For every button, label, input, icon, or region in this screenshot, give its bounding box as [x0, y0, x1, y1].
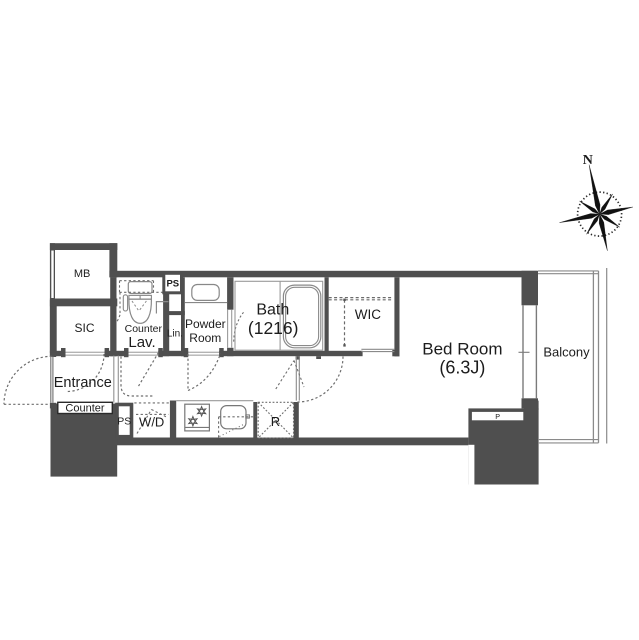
svg-text:Bath: Bath — [256, 302, 289, 319]
svg-text:Bed Room: Bed Room — [422, 340, 502, 359]
svg-text:N: N — [583, 153, 593, 168]
svg-text:Balcony: Balcony — [543, 344, 590, 359]
svg-text:PS: PS — [166, 279, 179, 290]
svg-text:Lav.: Lav. — [128, 334, 155, 351]
svg-text:Lin.: Lin. — [167, 329, 183, 340]
svg-text:WIC: WIC — [355, 307, 381, 322]
svg-text:R: R — [271, 414, 280, 429]
svg-text:Room: Room — [189, 331, 221, 345]
svg-text:P: P — [495, 412, 500, 421]
svg-text:SIC: SIC — [74, 321, 94, 335]
svg-text:Powder: Powder — [185, 317, 226, 331]
svg-text:(6.3J): (6.3J) — [439, 358, 485, 378]
svg-text:PS: PS — [117, 416, 131, 428]
svg-text:MB: MB — [74, 268, 91, 280]
svg-text:(1216): (1216) — [248, 318, 299, 338]
svg-text:W/D: W/D — [139, 414, 164, 429]
svg-text:Entrance: Entrance — [54, 375, 112, 391]
svg-text:Counter: Counter — [65, 403, 104, 415]
